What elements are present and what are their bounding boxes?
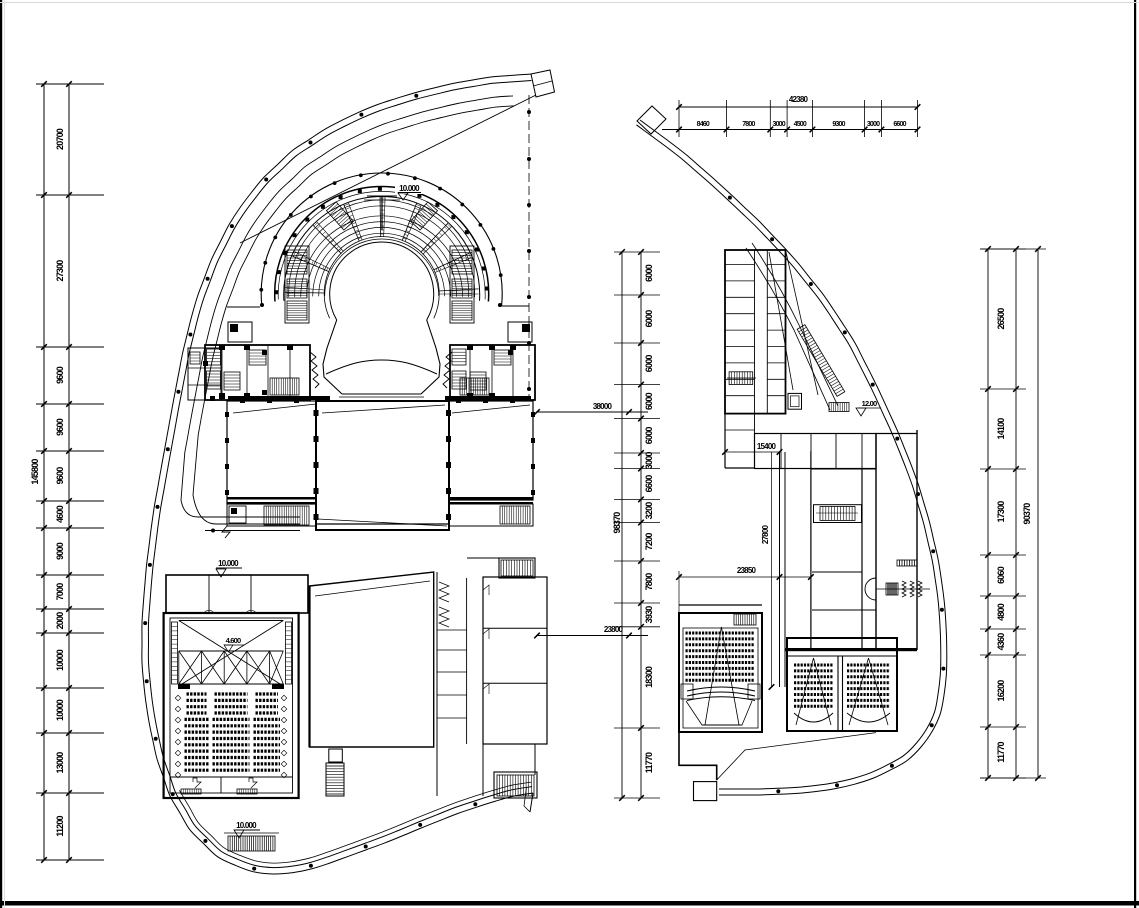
svg-text:11770: 11770 bbox=[996, 741, 1006, 762]
svg-text:6600: 6600 bbox=[893, 121, 906, 128]
svg-text:10.000: 10.000 bbox=[399, 184, 420, 193]
svg-text:2000: 2000 bbox=[55, 612, 65, 630]
svg-text:3930: 3930 bbox=[644, 606, 654, 624]
svg-text:4360: 4360 bbox=[996, 633, 1006, 651]
svg-text:3000: 3000 bbox=[644, 452, 654, 470]
svg-text:12.00: 12.00 bbox=[862, 399, 877, 408]
svg-text:17300: 17300 bbox=[996, 501, 1006, 523]
svg-text:6000: 6000 bbox=[644, 264, 654, 282]
svg-text:7800: 7800 bbox=[742, 121, 755, 128]
svg-text:7000: 7000 bbox=[55, 583, 65, 601]
svg-text:27800: 27800 bbox=[761, 525, 770, 545]
svg-text:6600: 6600 bbox=[644, 475, 654, 493]
svg-text:6000: 6000 bbox=[644, 355, 654, 373]
svg-text:23850: 23850 bbox=[737, 566, 757, 575]
svg-text:23800: 23800 bbox=[604, 625, 624, 634]
svg-text:13000: 13000 bbox=[55, 752, 65, 774]
svg-text:42380: 42380 bbox=[789, 95, 809, 104]
svg-text:10000: 10000 bbox=[55, 699, 65, 721]
svg-text:9600: 9600 bbox=[55, 366, 65, 384]
svg-text:11770: 11770 bbox=[644, 752, 654, 773]
svg-text:10000: 10000 bbox=[55, 649, 65, 671]
svg-text:4500: 4500 bbox=[794, 121, 807, 128]
svg-text:6000: 6000 bbox=[644, 392, 654, 410]
svg-text:8460: 8460 bbox=[697, 121, 710, 128]
svg-text:145800: 145800 bbox=[30, 459, 40, 485]
svg-text:98370: 98370 bbox=[612, 512, 622, 534]
svg-text:10.000: 10.000 bbox=[236, 821, 257, 830]
svg-text:18300: 18300 bbox=[644, 666, 654, 688]
svg-text:11200: 11200 bbox=[55, 815, 65, 836]
svg-text:20700: 20700 bbox=[55, 128, 65, 150]
svg-text:38000: 38000 bbox=[593, 402, 613, 411]
svg-text:90370: 90370 bbox=[1022, 503, 1032, 525]
svg-text:6000: 6000 bbox=[644, 427, 654, 445]
svg-text:4.600: 4.600 bbox=[226, 636, 241, 645]
svg-text:3000: 3000 bbox=[773, 121, 786, 128]
svg-text:9600: 9600 bbox=[55, 467, 65, 485]
svg-text:4800: 4800 bbox=[996, 603, 1006, 621]
svg-text:15400: 15400 bbox=[757, 442, 777, 451]
svg-text:14100: 14100 bbox=[996, 418, 1006, 440]
svg-text:16200: 16200 bbox=[996, 680, 1006, 702]
svg-text:4600: 4600 bbox=[55, 505, 65, 523]
svg-text:3000: 3000 bbox=[867, 121, 880, 128]
svg-text:10.000: 10.000 bbox=[218, 559, 239, 568]
svg-text:3200: 3200 bbox=[644, 502, 654, 520]
svg-text:7800: 7800 bbox=[644, 573, 654, 591]
svg-text:26500: 26500 bbox=[996, 308, 1006, 330]
svg-text:27300: 27300 bbox=[55, 260, 65, 282]
svg-text:9000: 9000 bbox=[55, 542, 65, 560]
svg-text:6000: 6000 bbox=[644, 310, 654, 328]
svg-text:9600: 9600 bbox=[55, 418, 65, 436]
svg-text:7200: 7200 bbox=[644, 533, 654, 551]
svg-text:6060: 6060 bbox=[996, 566, 1006, 584]
svg-text:9300: 9300 bbox=[832, 121, 845, 128]
